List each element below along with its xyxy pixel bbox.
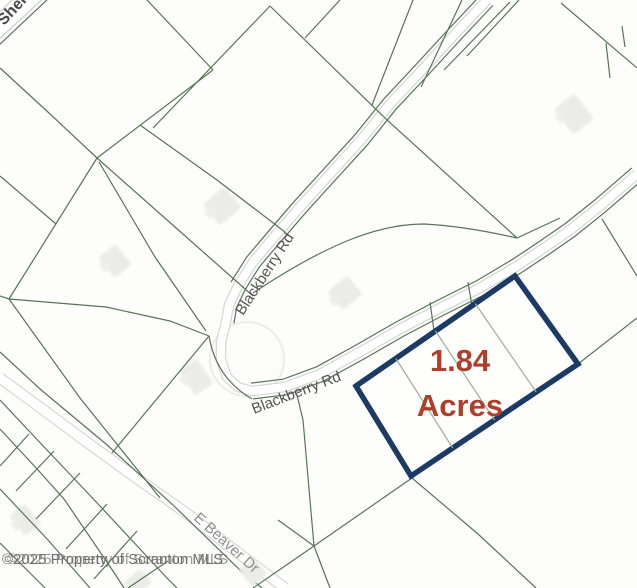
- svg-text:1.84: 1.84: [430, 343, 491, 378]
- svg-text:Acres: Acres: [417, 388, 503, 423]
- svg-text:©2025 Property of Scranton MLS: ©2025 Property of Scranton MLS: [7, 551, 228, 568]
